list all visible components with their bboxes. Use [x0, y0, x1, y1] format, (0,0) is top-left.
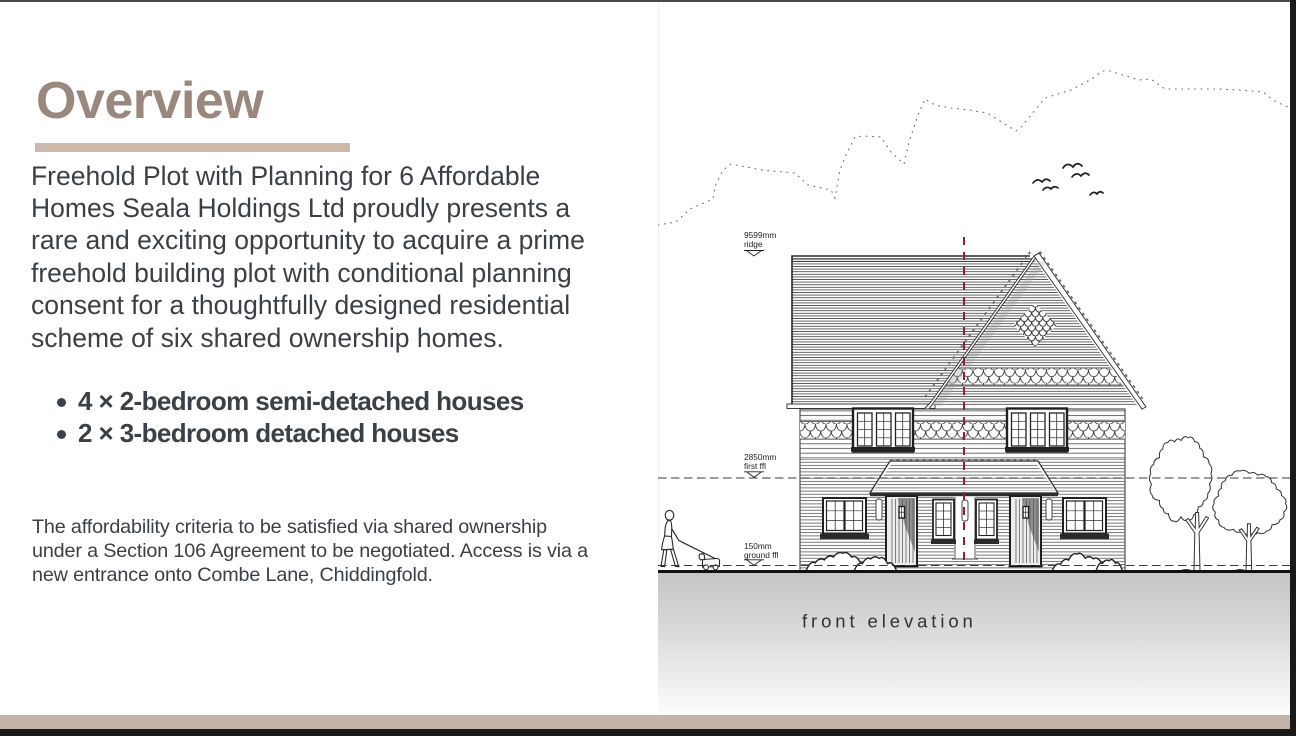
svg-text:ground ffl: ground ffl: [744, 550, 779, 560]
svg-text:ridge: ridge: [744, 239, 763, 249]
svg-text:front elevation: front elevation: [802, 611, 977, 632]
svg-text:first ffl: first ffl: [744, 461, 766, 471]
